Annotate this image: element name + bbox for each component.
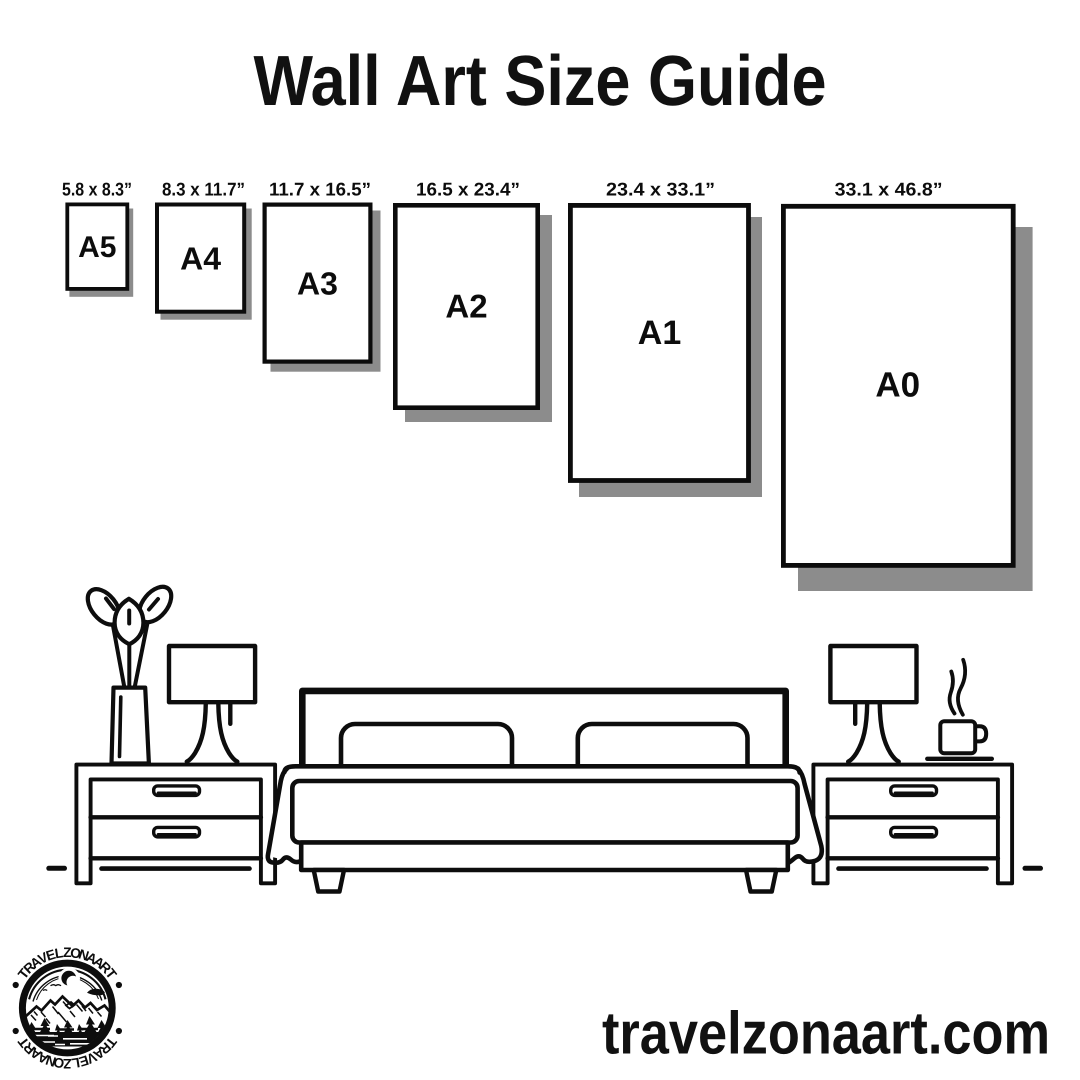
svg-text:A4: A4	[180, 241, 221, 277]
svg-text:A0: A0	[875, 366, 920, 405]
svg-text:A3: A3	[297, 265, 338, 301]
svg-text:5.8 x 8.3”: 5.8 x 8.3”	[62, 179, 132, 200]
svg-text:A1: A1	[638, 314, 681, 352]
svg-text:travelzonaart.com: travelzonaart.com	[602, 1000, 1050, 1067]
svg-text:A5: A5	[78, 231, 116, 264]
svg-text:23.4 x 33.1”: 23.4 x 33.1”	[606, 179, 715, 200]
svg-text:11.7 x 16.5”: 11.7 x 16.5”	[269, 179, 371, 200]
svg-text:33.1 x 46.8”: 33.1 x 46.8”	[835, 179, 943, 200]
svg-text:A2: A2	[445, 288, 487, 325]
svg-text:16.5 x 23.4”: 16.5 x 23.4”	[416, 179, 520, 200]
svg-text:Wall Art Size Guide: Wall Art Size Guide	[254, 42, 827, 121]
svg-text:8.3 x 11.7”: 8.3 x 11.7”	[162, 179, 245, 200]
